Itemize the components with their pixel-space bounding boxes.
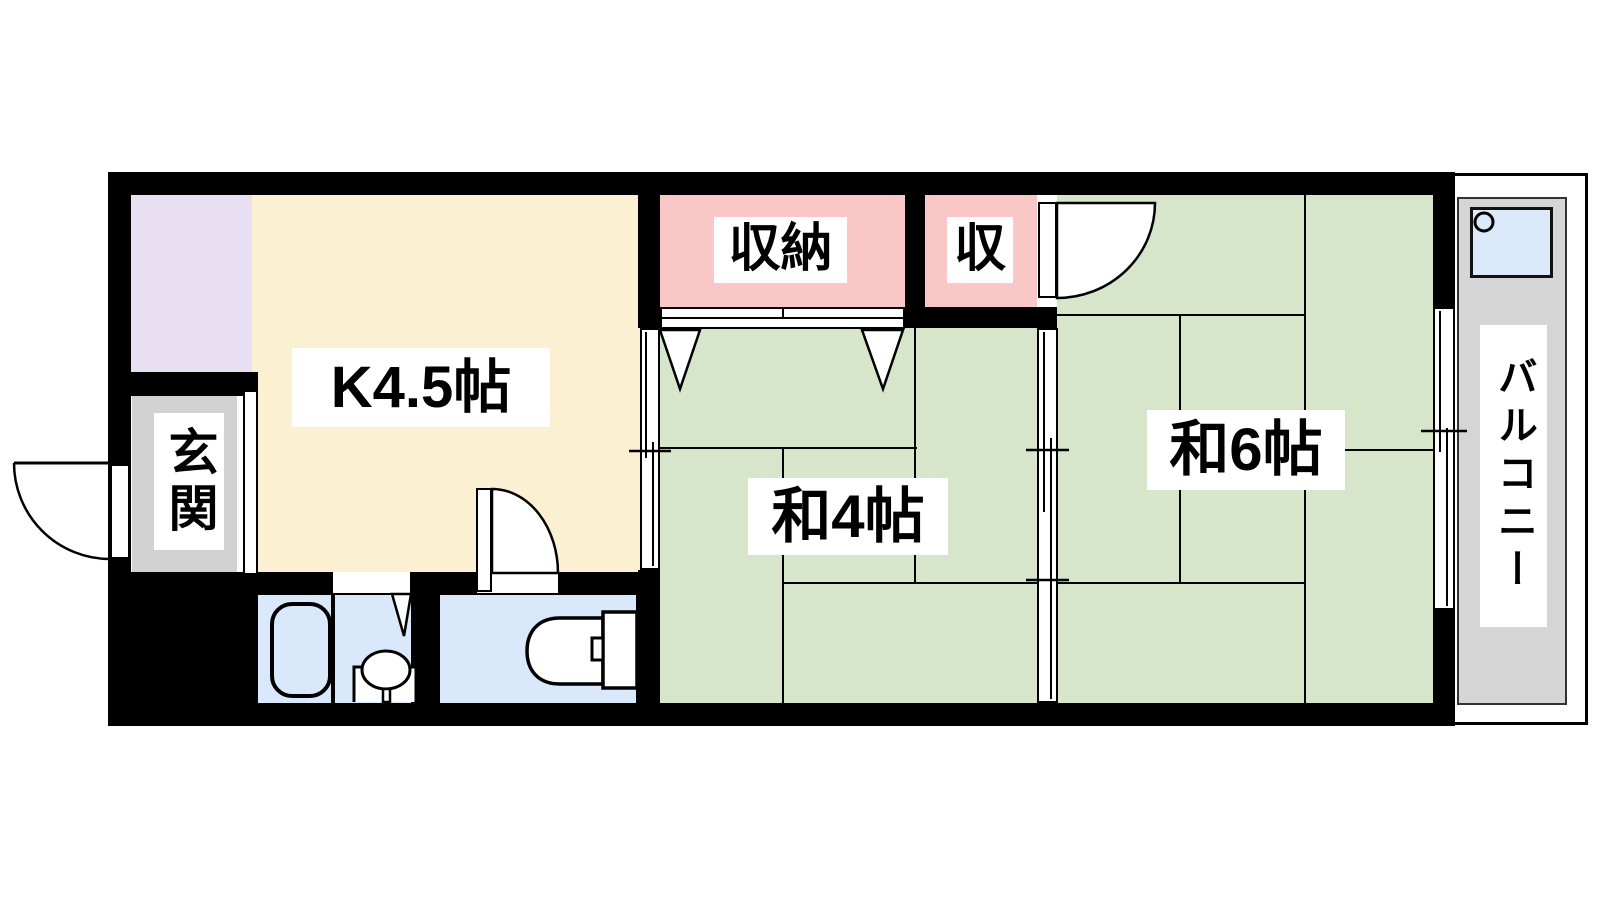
- kitchen-label: K4.5帖: [292, 348, 550, 427]
- bath-entrance-wall: [131, 372, 258, 396]
- toilet-door-leaf: [476, 488, 492, 592]
- outer-wall-bottom: [108, 703, 1455, 726]
- washbasin-doorway: [333, 572, 410, 593]
- outer-wall-right-lower: [1433, 610, 1455, 726]
- floor-plan: K4.5帖 玄関 収納 収 和4帖 和6帖 バルコニー: [0, 0, 1600, 900]
- washitsu6-label: 和6帖: [1147, 410, 1345, 490]
- closet-sliding-doors: [660, 307, 905, 329]
- entrance-step: [243, 390, 258, 575]
- kitchen-washitsu4-sliding-door: [640, 328, 660, 570]
- balcony-label: バルコニー: [1480, 325, 1547, 627]
- closet-small-bottom-wall: [905, 307, 1057, 328]
- kitchen-right-wall-lower: [638, 570, 660, 726]
- washbasin-toilet-wall: [413, 593, 438, 703]
- entrance-door-icon: [14, 463, 110, 559]
- kitchen-right-wall-upper: [638, 195, 660, 328]
- washing-machine-pan-icon: [1470, 207, 1553, 278]
- washitsu6-door-leaf: [1038, 202, 1057, 298]
- outer-wall-top: [108, 172, 1455, 195]
- closet-divider-wall: [905, 195, 925, 307]
- toilet-room: [438, 593, 638, 705]
- washitsu4-washitsu6-sliding-door: [1037, 328, 1058, 703]
- closet-large-label: 収納: [714, 217, 847, 283]
- entrance-doorway: [110, 464, 130, 559]
- bath-room: [131, 195, 252, 372]
- outer-wall-right-upper: [1433, 172, 1455, 307]
- entrance-label: 玄関: [154, 413, 224, 550]
- balcony-window: [1433, 307, 1455, 610]
- entrance-corner-wall: [108, 572, 258, 726]
- washitsu4-label: 和4帖: [748, 478, 948, 555]
- bathtub-room: [256, 593, 333, 705]
- washbasin-room: [333, 593, 413, 705]
- kitchen-bottom-wall: [252, 572, 640, 593]
- closet-small-label: 収: [947, 217, 1013, 283]
